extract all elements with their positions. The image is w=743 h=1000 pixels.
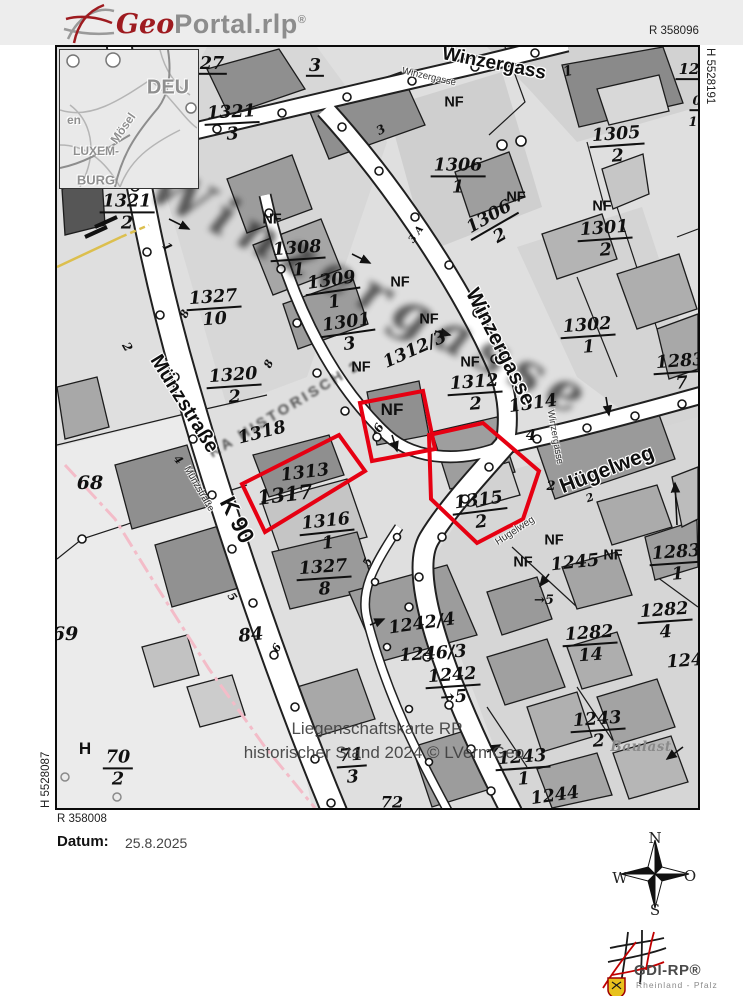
inset-label-en: en bbox=[67, 113, 81, 127]
parcel-label-1312-2: 13122 bbox=[446, 373, 503, 416]
parcel-label-1306-1: 13061 bbox=[431, 157, 486, 196]
parcel-label-1242-5: 1242→5 bbox=[424, 666, 481, 709]
map-canvas: Winzergasse KA HISTORISCH 2 273132131321… bbox=[55, 45, 700, 810]
parcel-label-0: 0 bbox=[689, 95, 700, 111]
nf-label: NF bbox=[513, 555, 532, 570]
compass-south-label: S bbox=[650, 901, 660, 919]
parcel-label-4: 4 bbox=[526, 428, 536, 444]
parcel-label-1309-1: 13091 bbox=[303, 269, 363, 315]
nf-label: NF bbox=[592, 199, 611, 214]
parcel-label-27: 27 bbox=[197, 55, 227, 75]
parcel-label-1301-3: 13013 bbox=[318, 311, 378, 357]
logo-registered-mark: ® bbox=[298, 14, 306, 26]
parcel-label-3: 3 bbox=[306, 57, 324, 77]
parcel-label-68: 68 bbox=[77, 474, 103, 494]
nf-label: NF bbox=[390, 275, 409, 290]
parcel-label-1301-2: 13012 bbox=[576, 219, 633, 262]
nf-label: NF bbox=[506, 190, 525, 205]
parcel-label-1243: 1243 bbox=[666, 650, 700, 672]
compass-east-label: O bbox=[684, 867, 696, 885]
coordinate-r-bottom: R 358008 bbox=[57, 813, 107, 825]
compass-west-label: W bbox=[612, 869, 627, 887]
parcel-label-1305-2: 13052 bbox=[588, 125, 645, 168]
parcel-label-1282-4: 12824 bbox=[636, 601, 693, 644]
parcel-label-69: 69 bbox=[55, 625, 78, 645]
logo-geo: Geo bbox=[116, 9, 174, 40]
parcel-label-1282-14: 128214 bbox=[561, 624, 618, 667]
nf-label: NF bbox=[262, 212, 281, 227]
parcel-label-70-2: 702 bbox=[103, 749, 133, 788]
parcel-label-2: 2 bbox=[546, 480, 555, 494]
nf-label: NF bbox=[419, 312, 438, 327]
parcel-label-72: 72 bbox=[381, 795, 403, 810]
inset-label-deu: DEU bbox=[147, 77, 189, 100]
coordinate-h-left: H 5528087 bbox=[40, 752, 52, 808]
coordinate-r-top: R 358096 bbox=[649, 25, 699, 37]
parcel-label-1327-8: 13278 bbox=[295, 558, 352, 601]
nf-label: NF bbox=[351, 360, 370, 375]
watermark-line-2: historischer Stand 2024 © LVermGeo bbox=[244, 743, 525, 763]
parcel-label-1327-10: 132710 bbox=[185, 288, 242, 331]
coordinate-h-right: H 5528191 bbox=[704, 48, 716, 104]
watermark-line-1: Liegenschaftskarte RP bbox=[291, 719, 462, 739]
parcel-label-1321-3: 13213 bbox=[204, 103, 261, 145]
parcel-label-12: 12 bbox=[676, 62, 700, 80]
gdi-rp-logo: GDI-RP® Rheinland - Pfalz bbox=[598, 930, 740, 996]
nf-label: NF bbox=[544, 533, 563, 548]
geoportal-logo: GeoPortal.rlp® bbox=[62, 3, 306, 45]
parcel-label-1321-2: 13212 bbox=[100, 193, 155, 232]
parcel-label-1283-1: 12831 bbox=[648, 543, 700, 586]
overview-inset-map: DEUenMöselLUXEM-BURG bbox=[59, 49, 199, 189]
parcel-label-1302-1: 13021 bbox=[559, 316, 616, 359]
parcel-label-5: →5 bbox=[534, 594, 554, 608]
gdi-rp-title: GDI-RP® bbox=[634, 962, 701, 979]
logo-portal: Portal.rlp bbox=[174, 9, 298, 39]
parcel-label-1316-1: 13161 bbox=[298, 511, 357, 556]
date-label: Datum: bbox=[57, 833, 109, 850]
parcel-label-1315-2: 13152 bbox=[450, 489, 509, 535]
date-value: 25.8.2025 bbox=[125, 835, 187, 851]
compass-rose: N O S W bbox=[612, 826, 698, 922]
logo-text: GeoPortal.rlp® bbox=[116, 9, 306, 40]
geoportal-map-export: GeoPortal.rlp® R 358096 H 5528191 H 5528… bbox=[0, 0, 743, 1000]
nf-label: NF bbox=[460, 355, 479, 370]
inset-label-luxem-: LUXEM- bbox=[73, 144, 119, 158]
compass-north-label: N bbox=[648, 829, 661, 847]
globe-grid-icon bbox=[62, 3, 116, 45]
nf-label: H bbox=[79, 740, 91, 758]
gdi-rp-subtitle: Rheinland - Pfalz bbox=[636, 980, 718, 990]
nf-label: NF bbox=[444, 95, 463, 110]
inset-label-burg: BURG bbox=[77, 173, 115, 188]
parcel-label-12463: 1246/3 bbox=[399, 642, 467, 665]
parcel-label-Baulast: Baulast bbox=[610, 740, 671, 754]
parcel-label-84: 84 bbox=[238, 625, 265, 646]
parcel-label-1320-2: 13202 bbox=[205, 366, 262, 409]
nf-label: NF bbox=[381, 401, 404, 419]
nf-label: NF bbox=[603, 548, 622, 563]
parcel-label-1283-7: 12837 bbox=[652, 352, 700, 395]
parcel-label-1: 1 bbox=[688, 116, 697, 130]
